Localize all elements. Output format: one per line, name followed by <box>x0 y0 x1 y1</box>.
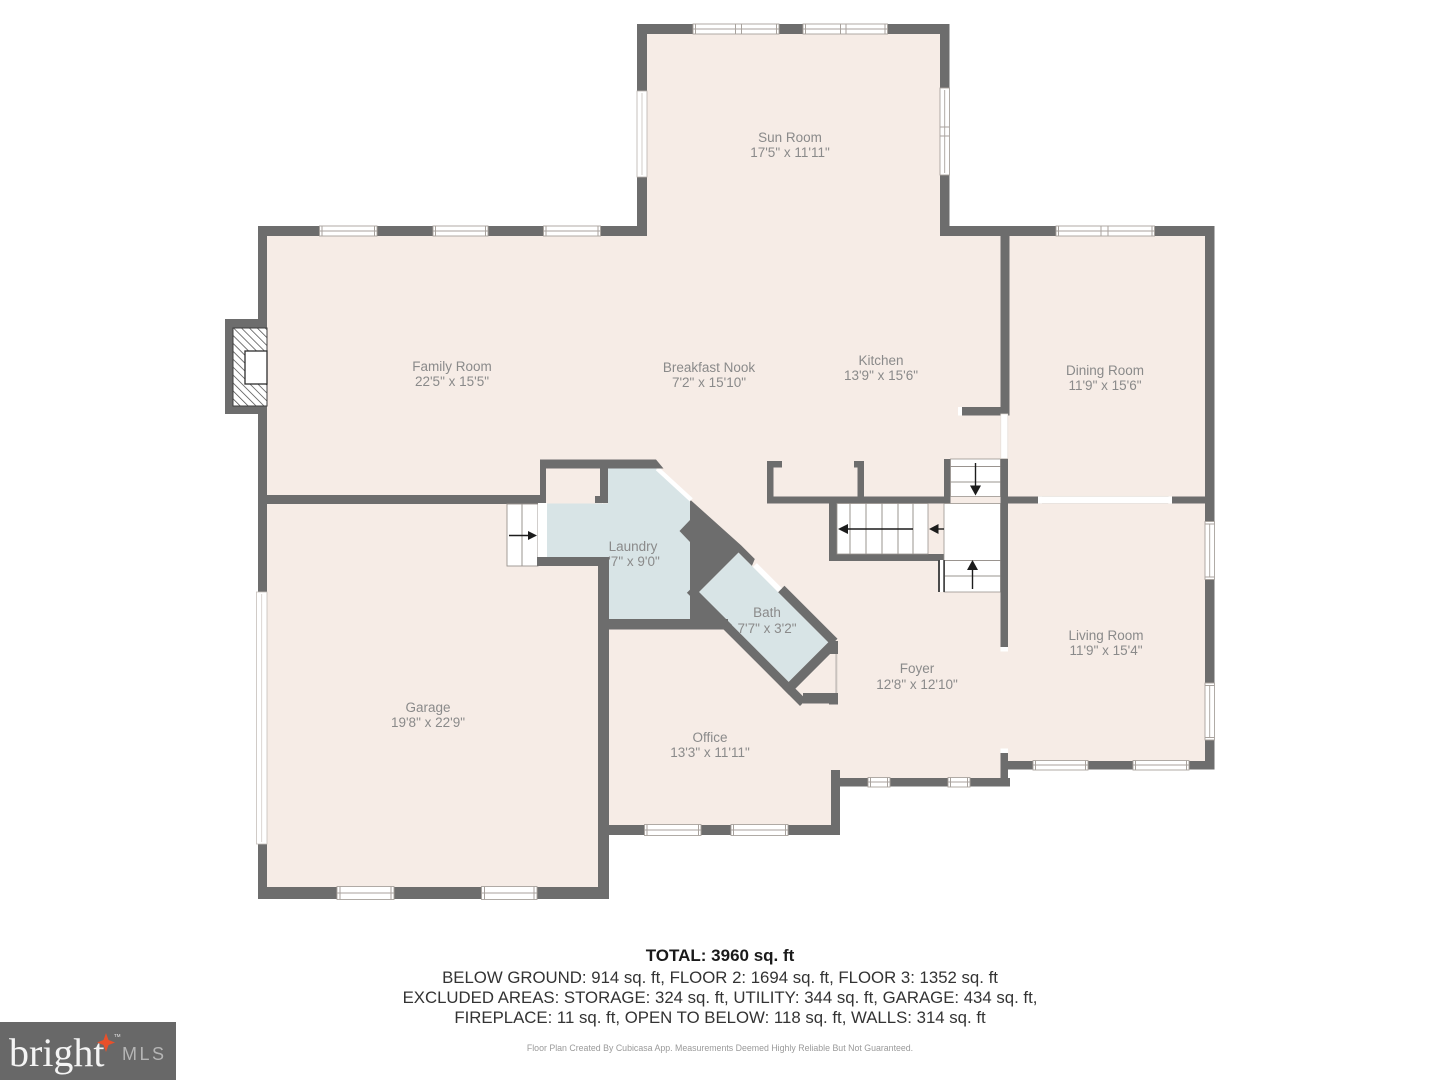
svg-text:Living Room: Living Room <box>1068 628 1143 643</box>
svg-text:Floor Plan Created By Cubicasa: Floor Plan Created By Cubicasa App. Meas… <box>527 1043 913 1053</box>
svg-text:7'2" x 15'10": 7'2" x 15'10" <box>672 375 746 390</box>
svg-text:MLS: MLS <box>122 1044 167 1064</box>
svg-text:19'8" x 22'9": 19'8" x 22'9" <box>391 715 465 730</box>
svg-text:13'3" x 11'11": 13'3" x 11'11" <box>670 745 750 760</box>
svg-text:Breakfast Nook: Breakfast Nook <box>663 360 756 375</box>
svg-text:BELOW GROUND: 914 sq. ft, FLOO: BELOW GROUND: 914 sq. ft, FLOOR 2: 1694 … <box>442 968 998 987</box>
svg-text:'7" x 9'0": '7" x 9'0" <box>608 554 660 569</box>
svg-text:TM: TM <box>114 1033 121 1038</box>
svg-text:11'9" x 15'6": 11'9" x 15'6" <box>1068 378 1141 393</box>
svg-text:Foyer: Foyer <box>900 661 935 676</box>
svg-text:22'5" x 15'5": 22'5" x 15'5" <box>415 374 489 389</box>
svg-text:Laundry: Laundry <box>609 539 658 554</box>
svg-text:12'8" x 12'10": 12'8" x 12'10" <box>876 677 958 692</box>
svg-text:Garage: Garage <box>405 700 450 715</box>
svg-text:7'7" x 3'2": 7'7" x 3'2" <box>737 621 796 636</box>
svg-text:Kitchen: Kitchen <box>858 353 903 368</box>
svg-text:EXCLUDED AREAS: STORAGE: 324 s: EXCLUDED AREAS: STORAGE: 324 sq. ft, UTI… <box>403 988 1038 1007</box>
svg-text:TOTAL: 3960 sq. ft: TOTAL: 3960 sq. ft <box>646 946 795 965</box>
svg-text:17'5" x 11'11": 17'5" x 11'11" <box>750 145 830 160</box>
svg-text:Bath: Bath <box>753 605 781 620</box>
svg-text:Dining Room: Dining Room <box>1066 363 1144 378</box>
svg-text:Office: Office <box>692 730 727 745</box>
svg-text:bright: bright <box>9 1030 105 1075</box>
svg-text:Sun Room: Sun Room <box>758 130 822 145</box>
svg-text:FIREPLACE: 11 sq. ft, OPEN TO: FIREPLACE: 11 sq. ft, OPEN TO BELOW: 118… <box>454 1008 986 1027</box>
svg-text:11'9" x 15'4": 11'9" x 15'4" <box>1069 643 1142 658</box>
svg-text:13'9" x 15'6": 13'9" x 15'6" <box>844 368 918 383</box>
svg-text:Family Room: Family Room <box>412 359 492 374</box>
